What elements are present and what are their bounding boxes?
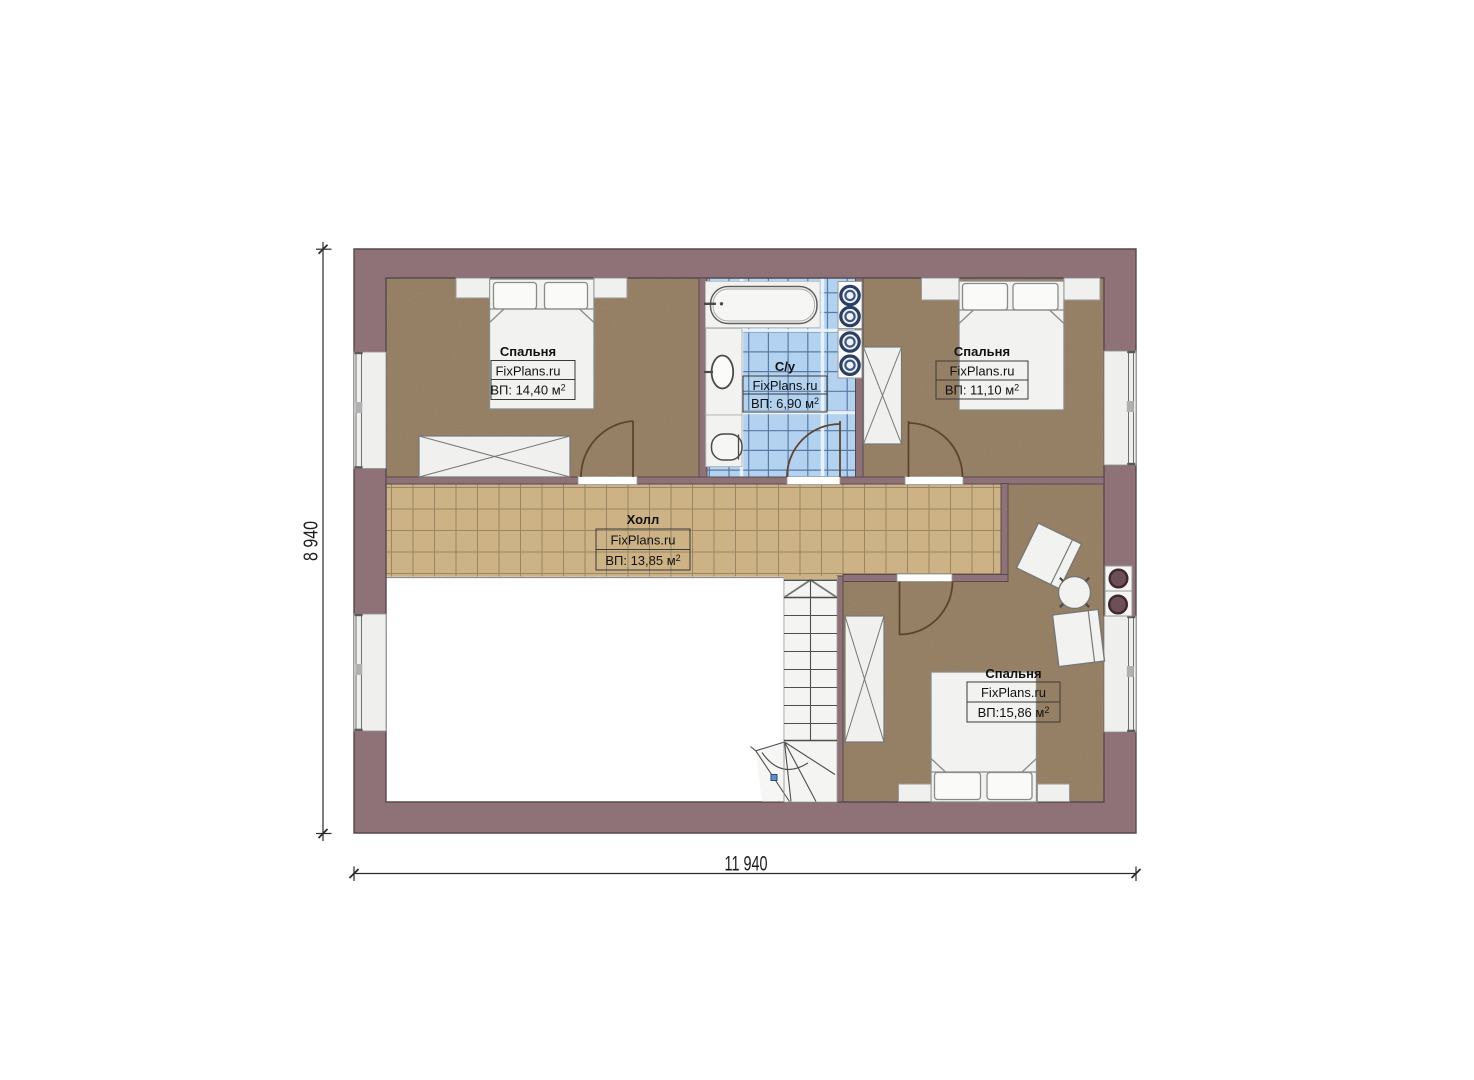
svg-text:Спальня: Спальня (500, 344, 556, 359)
svg-text:Спальня: Спальня (954, 344, 1010, 359)
svg-text:С/у: С/у (775, 359, 796, 374)
svg-text:FixPlans.ru: FixPlans.ru (610, 533, 675, 548)
svg-text:ВП: 6,90 м2: ВП: 6,90 м2 (751, 396, 819, 411)
svg-text:ВП: 14,40 м2: ВП: 14,40 м2 (490, 383, 565, 398)
svg-text:Спальня: Спальня (985, 666, 1041, 681)
svg-text:FixPlans.ru: FixPlans.ru (495, 364, 560, 379)
svg-text:FixPlans.ru: FixPlans.ru (752, 378, 817, 393)
svg-text:ВП: 13,85 м2: ВП: 13,85 м2 (605, 553, 680, 568)
svg-text:Холл: Холл (627, 512, 660, 527)
svg-text:FixPlans.ru: FixPlans.ru (949, 364, 1014, 379)
svg-text:8 940: 8 940 (301, 521, 323, 561)
svg-text:ВП: 11,10 м2: ВП: 11,10 м2 (945, 383, 1019, 398)
svg-text:11 940: 11 940 (725, 853, 768, 876)
svg-text:ВП:15,86 м2: ВП:15,86 м2 (978, 705, 1050, 720)
svg-text:FixPlans.ru: FixPlans.ru (981, 685, 1046, 700)
